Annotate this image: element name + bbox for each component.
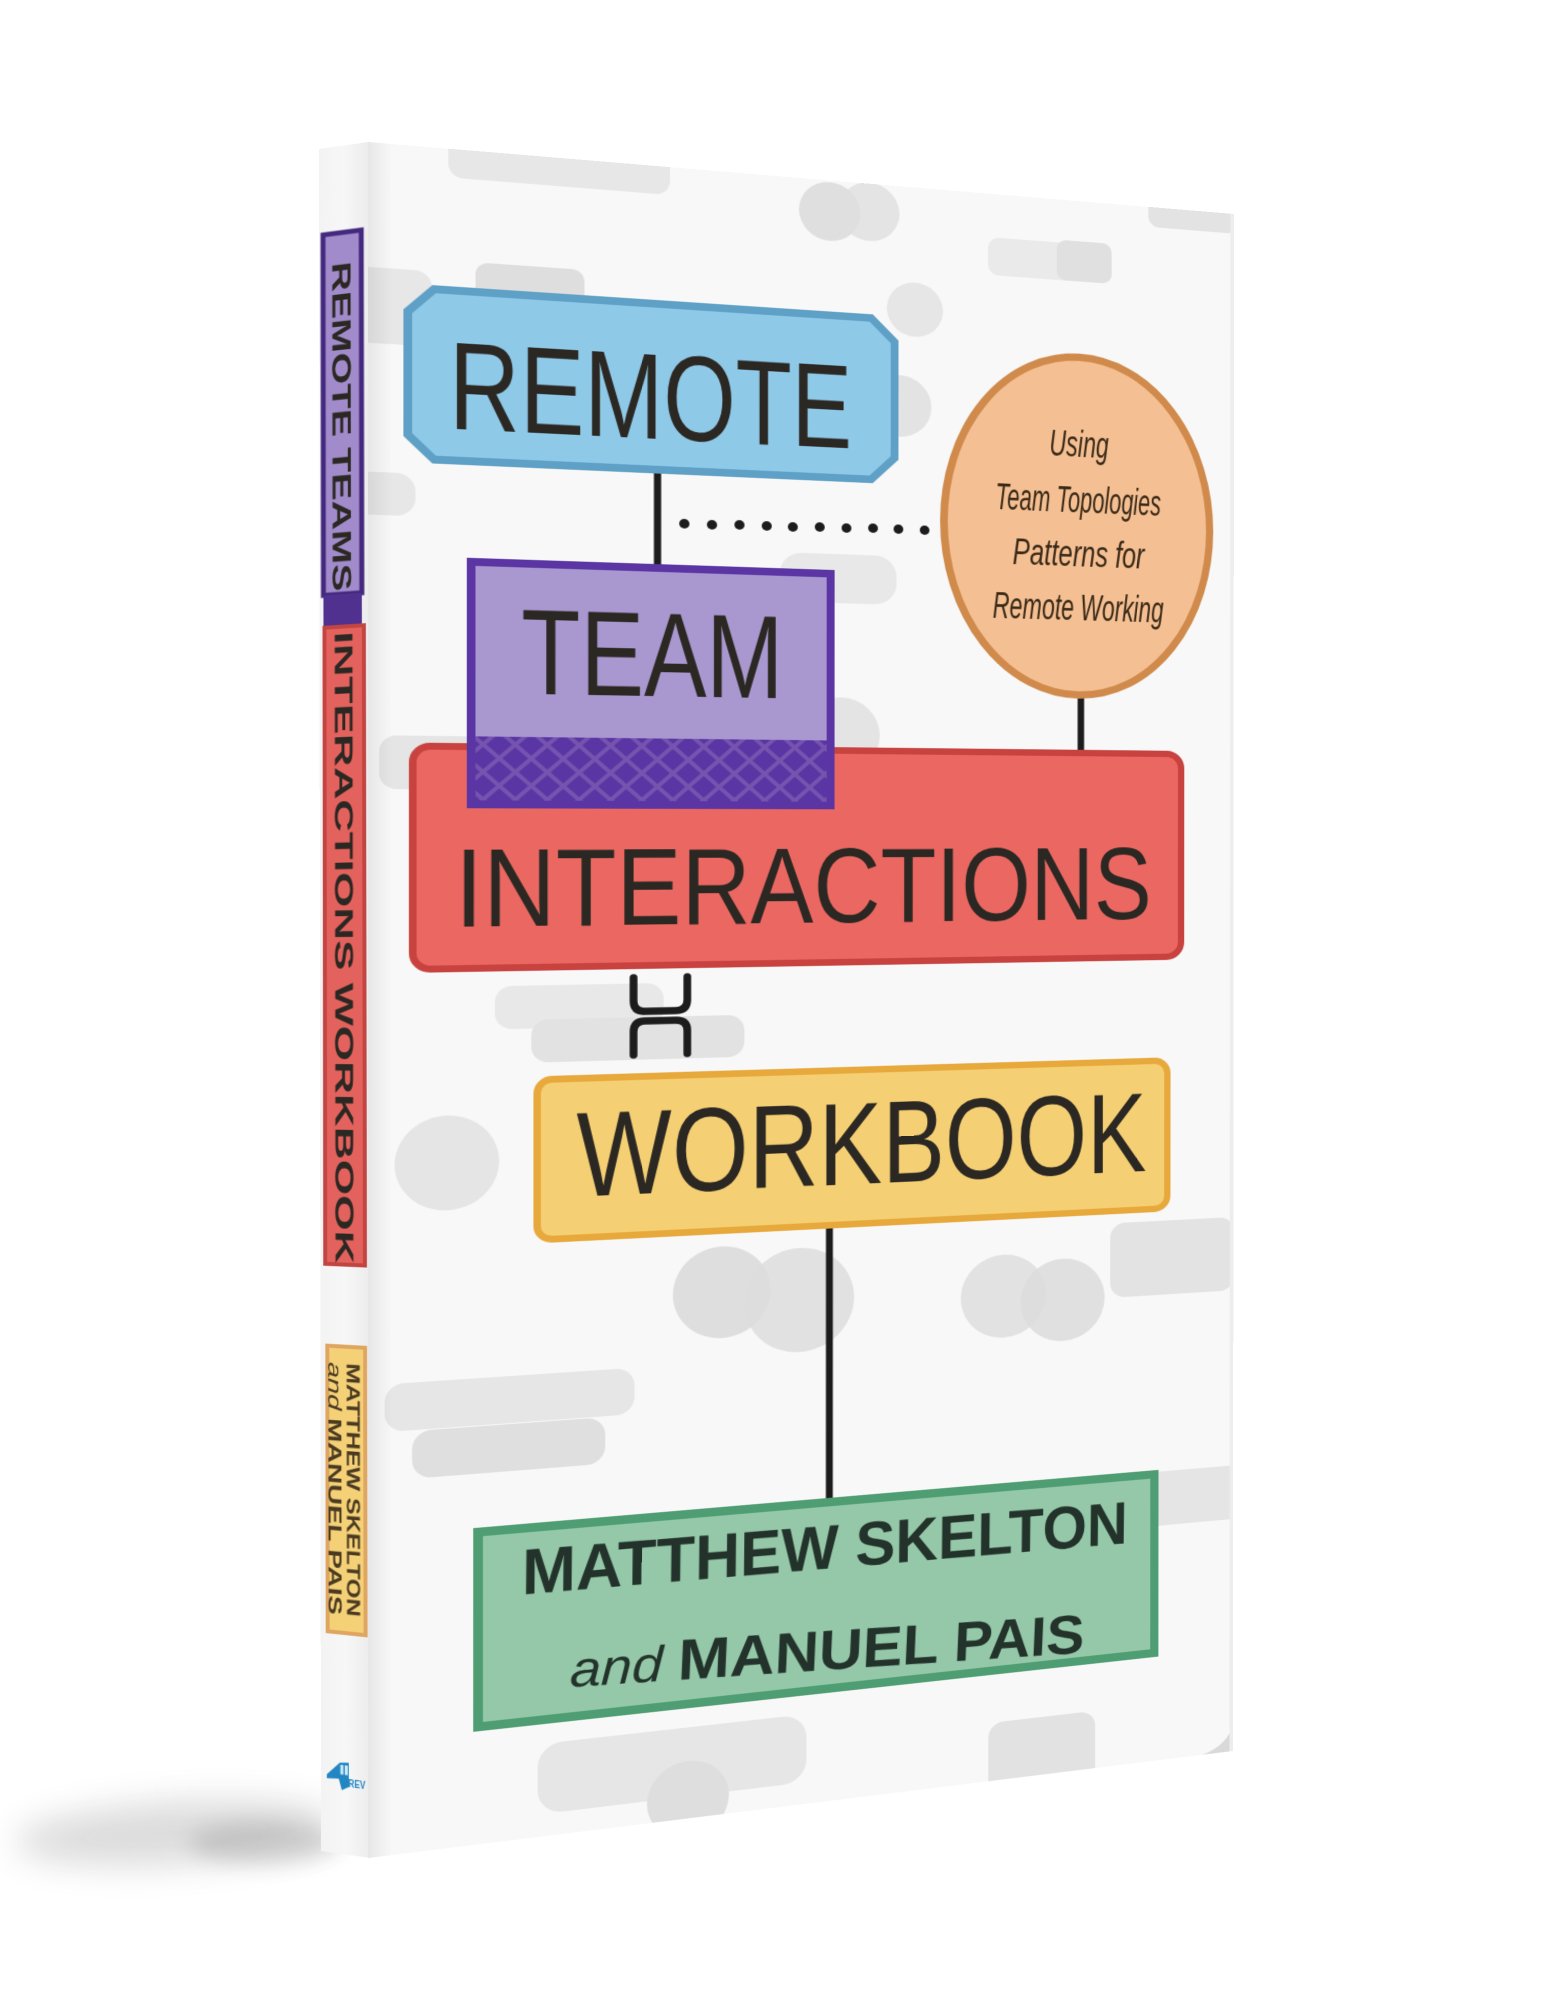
svg-text:REV: REV bbox=[348, 1778, 365, 1792]
svg-text:Using: Using bbox=[1049, 422, 1109, 466]
svg-text:REMOTE TEAMS: REMOTE TEAMS bbox=[326, 260, 355, 592]
svg-text:Team Topologies: Team Topologies bbox=[996, 476, 1161, 524]
svg-text:INTERACTIONS: INTERACTIONS bbox=[455, 826, 1152, 951]
svg-text:Remote Working: Remote Working bbox=[993, 585, 1164, 631]
svg-text:Patterns for: Patterns for bbox=[1013, 531, 1146, 577]
svg-text:INTERACTIONS WORKBOOK: INTERACTIONS WORKBOOK bbox=[329, 631, 358, 1265]
svg-text:and MANUEL PAIS: and MANUEL PAIS bbox=[324, 1361, 345, 1615]
svg-text:REMOTE: REMOTE bbox=[449, 316, 852, 474]
svg-text:TEAM: TEAM bbox=[521, 583, 783, 724]
